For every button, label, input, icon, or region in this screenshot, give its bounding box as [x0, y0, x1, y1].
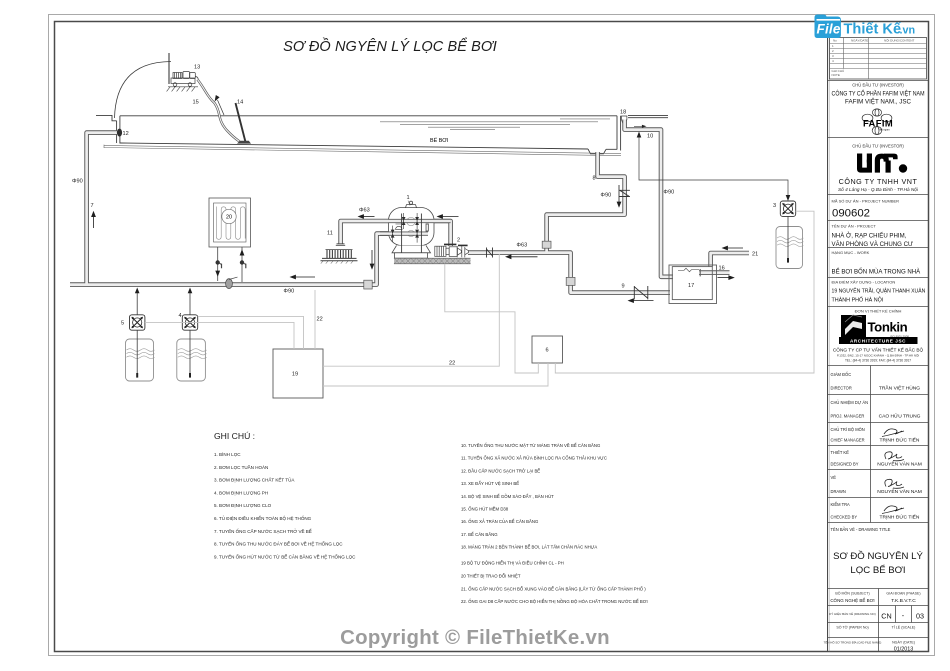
svg-text:TÊN BẢN VẼ - DRAWING TITLE: TÊN BẢN VẼ - DRAWING TITLE: [831, 527, 891, 532]
svg-text:CHIEF MANAGER: CHIEF MANAGER: [831, 438, 865, 443]
svg-text:Φ63: Φ63: [359, 208, 370, 214]
svg-text:7. TUYẾN ỐNG CẤP NƯỚC SẠCH TRỞ: 7. TUYẾN ỐNG CẤP NƯỚC SẠCH TRỞ VỀ BỂ: [214, 528, 312, 534]
svg-text:No: No: [833, 39, 837, 43]
svg-text:SƠ ĐỒ NGYÊN LÝ LỌC BỂ BƠI: SƠ ĐỒ NGYÊN LÝ LỌC BỂ BƠI: [283, 37, 497, 55]
svg-text:15. ỐNG HÚT MỀM D38: 15. ỐNG HÚT MỀM D38: [461, 507, 509, 512]
svg-text:THIẾT KẾ: THIẾT KẾ: [831, 450, 850, 455]
svg-text:11. TUYẾN ỐNG XẢ NƯỚC XẢ RỬA B: 11. TUYẾN ỐNG XẢ NƯỚC XẢ RỬA BÌNH LỌC RA…: [461, 456, 607, 461]
svg-text:CHECKED BY: CHECKED BY: [831, 515, 858, 520]
svg-text:4: 4: [832, 59, 834, 63]
svg-text:8. TUYẾN ỐNG THU NƯỚC ĐÁY BỂ B: 8. TUYẾN ỐNG THU NƯỚC ĐÁY BỂ BƠI VỀ HỆ T…: [214, 540, 343, 547]
svg-text:SỐ TỜ (PAPER No): SỐ TỜ (PAPER No): [836, 625, 868, 630]
svg-text:6: 6: [546, 348, 549, 354]
svg-text:CHỦ ĐẦU TƯ (INVESTOR): CHỦ ĐẦU TƯ (INVESTOR): [852, 144, 904, 149]
svg-text:SƠ ĐỒ NGUYÊN LÝ: SƠ ĐỒ NGUYÊN LÝ: [833, 550, 923, 562]
svg-text:DESIGNED BY: DESIGNED BY: [831, 462, 859, 467]
svg-text:22. ỐNG GAI D8 CẤP NƯỚC CHO BỘ: 22. ỐNG GAI D8 CẤP NƯỚC CHO BỘ HIỂN THỊ …: [461, 599, 648, 604]
svg-text:CÔNG TY TNHH VNT: CÔNG TY TNHH VNT: [839, 177, 918, 186]
svg-text:File: File: [817, 22, 841, 37]
svg-text:2: 2: [457, 238, 460, 244]
svg-text:7: 7: [91, 203, 94, 209]
svg-text:9. TUYẾN ỐNG HÚT NƯỚC TỪ BỂ CÂ: 9. TUYẾN ỐNG HÚT NƯỚC TỪ BỂ CÂN BẰNG VỀ …: [214, 552, 356, 559]
svg-text:TÊN HỒ SƠ TRONG ĐĨA (CAD FILE: TÊN HỒ SƠ TRONG ĐĨA (CAD FILE NAME): [824, 640, 882, 645]
svg-text:P.1332, ĐN2, 15-17 NGỌC KHÁNH: P.1332, ĐN2, 15-17 NGỌC KHÁNH - Q.BA ĐÌN…: [837, 353, 920, 358]
svg-text:8: 8: [593, 176, 596, 182]
svg-text:14: 14: [237, 100, 243, 106]
svg-text:2. BƠM LỌC TUẦN HOÀN: 2. BƠM LỌC TUẦN HOÀN: [214, 464, 268, 470]
svg-text:TÊN DỰ ÁN - PROJECT: TÊN DỰ ÁN - PROJECT: [832, 224, 877, 229]
svg-text:10. TUYẾN ỐNG THU NƯỚC MẶT TỪ: 10. TUYẾN ỐNG THU NƯỚC MẶT TỪ MÁNG TRÀN …: [461, 443, 601, 448]
svg-text:KIỂM TRA: KIỂM TRA: [831, 502, 851, 507]
svg-text:VĂN PHÒNG VÀ CHUNG CƯ: VĂN PHÒNG VÀ CHUNG CƯ: [832, 241, 914, 248]
svg-text:ARCHITECTURE JSC: ARCHITECTURE JSC: [850, 339, 906, 344]
svg-text:16. ỐNG XẢ TRÀN CỦA BỂ CÂN BẰN: 16. ỐNG XẢ TRÀN CỦA BỂ CÂN BẰNG: [461, 519, 539, 524]
svg-text:11: 11: [327, 231, 333, 237]
svg-text:Copyright © FileThietKe.vn: Copyright © FileThietKe.vn: [340, 627, 610, 649]
svg-text:HẠNG MỤC - WORK: HẠNG MỤC - WORK: [832, 250, 870, 255]
svg-text:CHỦ NHIỆM DỰ ÁN: CHỦ NHIỆM DỰ ÁN: [831, 400, 869, 405]
svg-text:12. ĐẦU CẤP NƯỚC SẠCH TRỞ LẠI: 12. ĐẦU CẤP NƯỚC SẠCH TRỞ LẠI BỂ: [461, 468, 540, 473]
svg-text:3: 3: [832, 54, 834, 58]
svg-text:BỂ BƠI BỐN MÙA TRONG NHÀ: BỂ BƠI BỐN MÙA TRONG NHÀ: [832, 269, 922, 276]
svg-text:Φ90: Φ90: [72, 179, 83, 185]
svg-text:14. BỘ VỆ SINH BỂ GỒM SÀO ĐẨY: 14. BỘ VỆ SINH BỂ GỒM SÀO ĐẨY , BÀN HÚT: [461, 494, 554, 499]
svg-text:1. BÌNH LỌC: 1. BÌNH LỌC: [214, 451, 241, 457]
svg-text:TỈ LỆ (SCALE): TỈ LỆ (SCALE): [892, 625, 916, 630]
svg-text:10: 10: [647, 134, 653, 140]
svg-text:Tonkin: Tonkin: [868, 320, 908, 335]
svg-text:13: 13: [194, 65, 200, 71]
svg-text:17. BỂ CÂN BẰNG: 17. BỂ CÂN BẰNG: [461, 532, 498, 537]
svg-text:VẼ: VẼ: [831, 475, 837, 480]
svg-text:20: 20: [226, 215, 232, 221]
svg-text:CN: CN: [881, 612, 891, 621]
svg-text:LỌC BỂ BƠI: LỌC BỂ BƠI: [850, 564, 905, 576]
svg-text:MÃ SỐ DỰ ÁN - PROJECT NUMBER: MÃ SỐ DỰ ÁN - PROJECT NUMBER: [832, 199, 900, 204]
svg-text:PROJ. MANAGER: PROJ. MANAGER: [831, 414, 865, 419]
svg-text:FAFIM VIỆT NAM., JSC: FAFIM VIỆT NAM., JSC: [845, 98, 911, 106]
svg-text:4. BƠM ĐỊNH LƯỢNG PH: 4. BƠM ĐỊNH LƯỢNG PH: [214, 490, 268, 495]
svg-text:FAFIM: FAFIM: [863, 118, 893, 129]
svg-text:DIRECTOR: DIRECTOR: [831, 386, 852, 391]
svg-text:16: 16: [719, 266, 725, 272]
svg-text:NỘI DUNG/CONTENT: NỘI DUNG/CONTENT: [884, 38, 915, 43]
svg-text:.vn: .vn: [900, 25, 916, 37]
svg-text:NGÀY (DATE): NGÀY (DATE): [892, 641, 915, 645]
svg-text:1: 1: [832, 44, 834, 48]
svg-text:NGÀY/DATE: NGÀY/DATE: [851, 39, 868, 43]
svg-text:18. MÁNG TRÀN 2 BÊN THÀNH BỂ B: 18. MÁNG TRÀN 2 BÊN THÀNH BỂ BƠI, LÁT TẤ…: [461, 545, 597, 550]
svg-text:ĐƠN VỊ THIẾT KẾ CHÍNH: ĐƠN VỊ THIẾT KẾ CHÍNH: [855, 309, 902, 314]
svg-text:19 NGUYỄN TRÃI, QUẬN THANH XUÂ: 19 NGUYỄN TRÃI, QUẬN THANH XUÂN: [832, 288, 926, 295]
svg-text:CÔNG TY CP TƯ VẤN THIẾT KẾ BẮC: CÔNG TY CP TƯ VẤN THIẾT KẾ BẮC BỘ: [833, 346, 924, 354]
svg-text:GIAI ĐOẠN (PHASE): GIAI ĐOẠN (PHASE): [886, 592, 920, 596]
svg-text:DRAWN: DRAWN: [831, 489, 846, 494]
svg-text:THÀNH PHỐ HÀ NỘI: THÀNH PHỐ HÀ NỘI: [832, 297, 884, 304]
svg-text:17: 17: [688, 283, 694, 289]
svg-text:NOTE: NOTE: [832, 73, 840, 77]
svg-text:Thiết Kế: Thiết Kế: [844, 22, 902, 38]
svg-text:Việt ngam: Việt ngam: [878, 128, 890, 132]
svg-text:20 THIẾT BỊ TRAO ĐỔI NHIỆT: 20 THIẾT BỊ TRAO ĐỔI NHIỆT: [461, 573, 521, 578]
svg-text:CÔNG TY CỔ PHẦN FAFIM VIỆT NAM: CÔNG TY CỔ PHẦN FAFIM VIỆT NAM: [832, 90, 925, 98]
svg-text:TRỊNH ĐỨC TIẾN: TRỊNH ĐỨC TIẾN: [880, 514, 920, 521]
svg-text:2: 2: [832, 49, 834, 53]
svg-text:KÝ HIỆU BẢN VẼ (DRAWING NO): KÝ HIỆU BẢN VẼ (DRAWING NO): [829, 611, 875, 616]
svg-text:6. TỦ ĐIỆN ĐIỀU KHIỂN TOÀN BỘ: 6. TỦ ĐIỆN ĐIỀU KHIỂN TOÀN BỘ HỆ THỐNG: [214, 514, 312, 521]
svg-text:03: 03: [916, 612, 924, 621]
svg-text:Φ90: Φ90: [664, 190, 675, 196]
svg-text:NGUYỄN VĂN NAM: NGUYỄN VĂN NAM: [877, 488, 922, 495]
svg-text:TRỊNH ĐỨC TIẾN: TRỊNH ĐỨC TIẾN: [880, 437, 920, 444]
svg-text:3. BƠM ĐỊNH LƯỢNG CHẤT KẾT TỦA: 3. BƠM ĐỊNH LƯỢNG CHẤT KẾT TỦA: [214, 477, 295, 483]
svg-text:18: 18: [620, 110, 626, 116]
svg-text:4: 4: [179, 313, 182, 319]
svg-text:Φ63: Φ63: [517, 243, 528, 249]
svg-text:NHÀ Ở, RẠP CHIẾU PHIM,: NHÀ Ở, RẠP CHIẾU PHIM,: [832, 233, 907, 240]
svg-text:Số 4 Láng Hạ - Q.Ba Đình - TP.: Số 4 Láng Hạ - Q.Ba Đình - TP.Hà Nội: [838, 186, 919, 192]
svg-text:19 BỘ TỰ ĐỘNG HIỂN THỊ VÀ ĐIỀ: 19 BỘ TỰ ĐỘNG HIỂN THỊ VÀ ĐIỀU CHỈNH CL …: [461, 561, 564, 566]
svg-text:BỘ MÔN (SUBJECT): BỘ MÔN (SUBJECT): [835, 591, 869, 596]
svg-text:GHI CHÚ :: GHI CHÚ :: [214, 431, 255, 441]
svg-text:5: 5: [121, 321, 124, 327]
svg-text:T.K.B.V.T.C: T.K.B.V.T.C: [891, 598, 916, 604]
svg-text:22: 22: [449, 361, 455, 367]
svg-text:CHỦ ĐẦU TƯ (INVESTOR): CHỦ ĐẦU TƯ (INVESTOR): [852, 83, 904, 88]
svg-text:Φ90: Φ90: [284, 289, 295, 295]
svg-text:3: 3: [773, 203, 776, 209]
svg-text:TRẦN VIỆT HÙNG: TRẦN VIỆT HÙNG: [879, 384, 920, 392]
svg-text:NGUYỄN VĂN NAM: NGUYỄN VĂN NAM: [877, 461, 922, 468]
svg-text:21. ỐNG CẤP NƯỚC SẠCH BỔ XUNG: 21. ỐNG CẤP NƯỚC SẠCH BỔ XUNG VÀO BỂ CÂN…: [461, 586, 646, 591]
svg-text:ĐỊA ĐIỂM XÂY DỰNG - LOCATION: ĐỊA ĐIỂM XÂY DỰNG - LOCATION: [832, 280, 896, 285]
svg-text:13. XE ĐẨY HÚT VỆ SINH BỂ: 13. XE ĐẨY HÚT VỆ SINH BỂ: [461, 481, 519, 486]
svg-text:5. BƠM ĐỊNH LƯỢNG CLO: 5. BƠM ĐỊNH LƯỢNG CLO: [214, 503, 272, 508]
svg-text:CHỦ TRÌ BỘ MÔN: CHỦ TRÌ BỘ MÔN: [831, 427, 865, 432]
svg-text:CAO HỮU TRUNG: CAO HỮU TRUNG: [879, 413, 921, 420]
svg-text:GIÁM ĐỐC: GIÁM ĐỐC: [831, 372, 852, 377]
svg-text:-: -: [902, 611, 905, 620]
svg-text:12: 12: [123, 131, 129, 137]
svg-text:9: 9: [622, 284, 625, 290]
svg-text:1: 1: [406, 195, 409, 201]
svg-text:21: 21: [752, 252, 758, 258]
svg-text:19: 19: [292, 372, 298, 378]
svg-text:CÔNG NGHỆ BỂ BƠI: CÔNG NGHỆ BỂ BƠI: [830, 596, 874, 603]
svg-text:BỂ BƠI: BỂ BƠI: [430, 137, 448, 144]
svg-text:TEL: (84-4) 3736 3919; FAX: (8: TEL: (84-4) 3736 3919; FAX: (84-4) 3736 …: [845, 359, 911, 363]
svg-text:01/2013: 01/2013: [894, 647, 914, 653]
svg-text:15: 15: [193, 100, 199, 106]
svg-text:090602: 090602: [832, 208, 870, 220]
svg-text:22: 22: [317, 317, 323, 323]
svg-text:Φ90: Φ90: [601, 193, 612, 199]
